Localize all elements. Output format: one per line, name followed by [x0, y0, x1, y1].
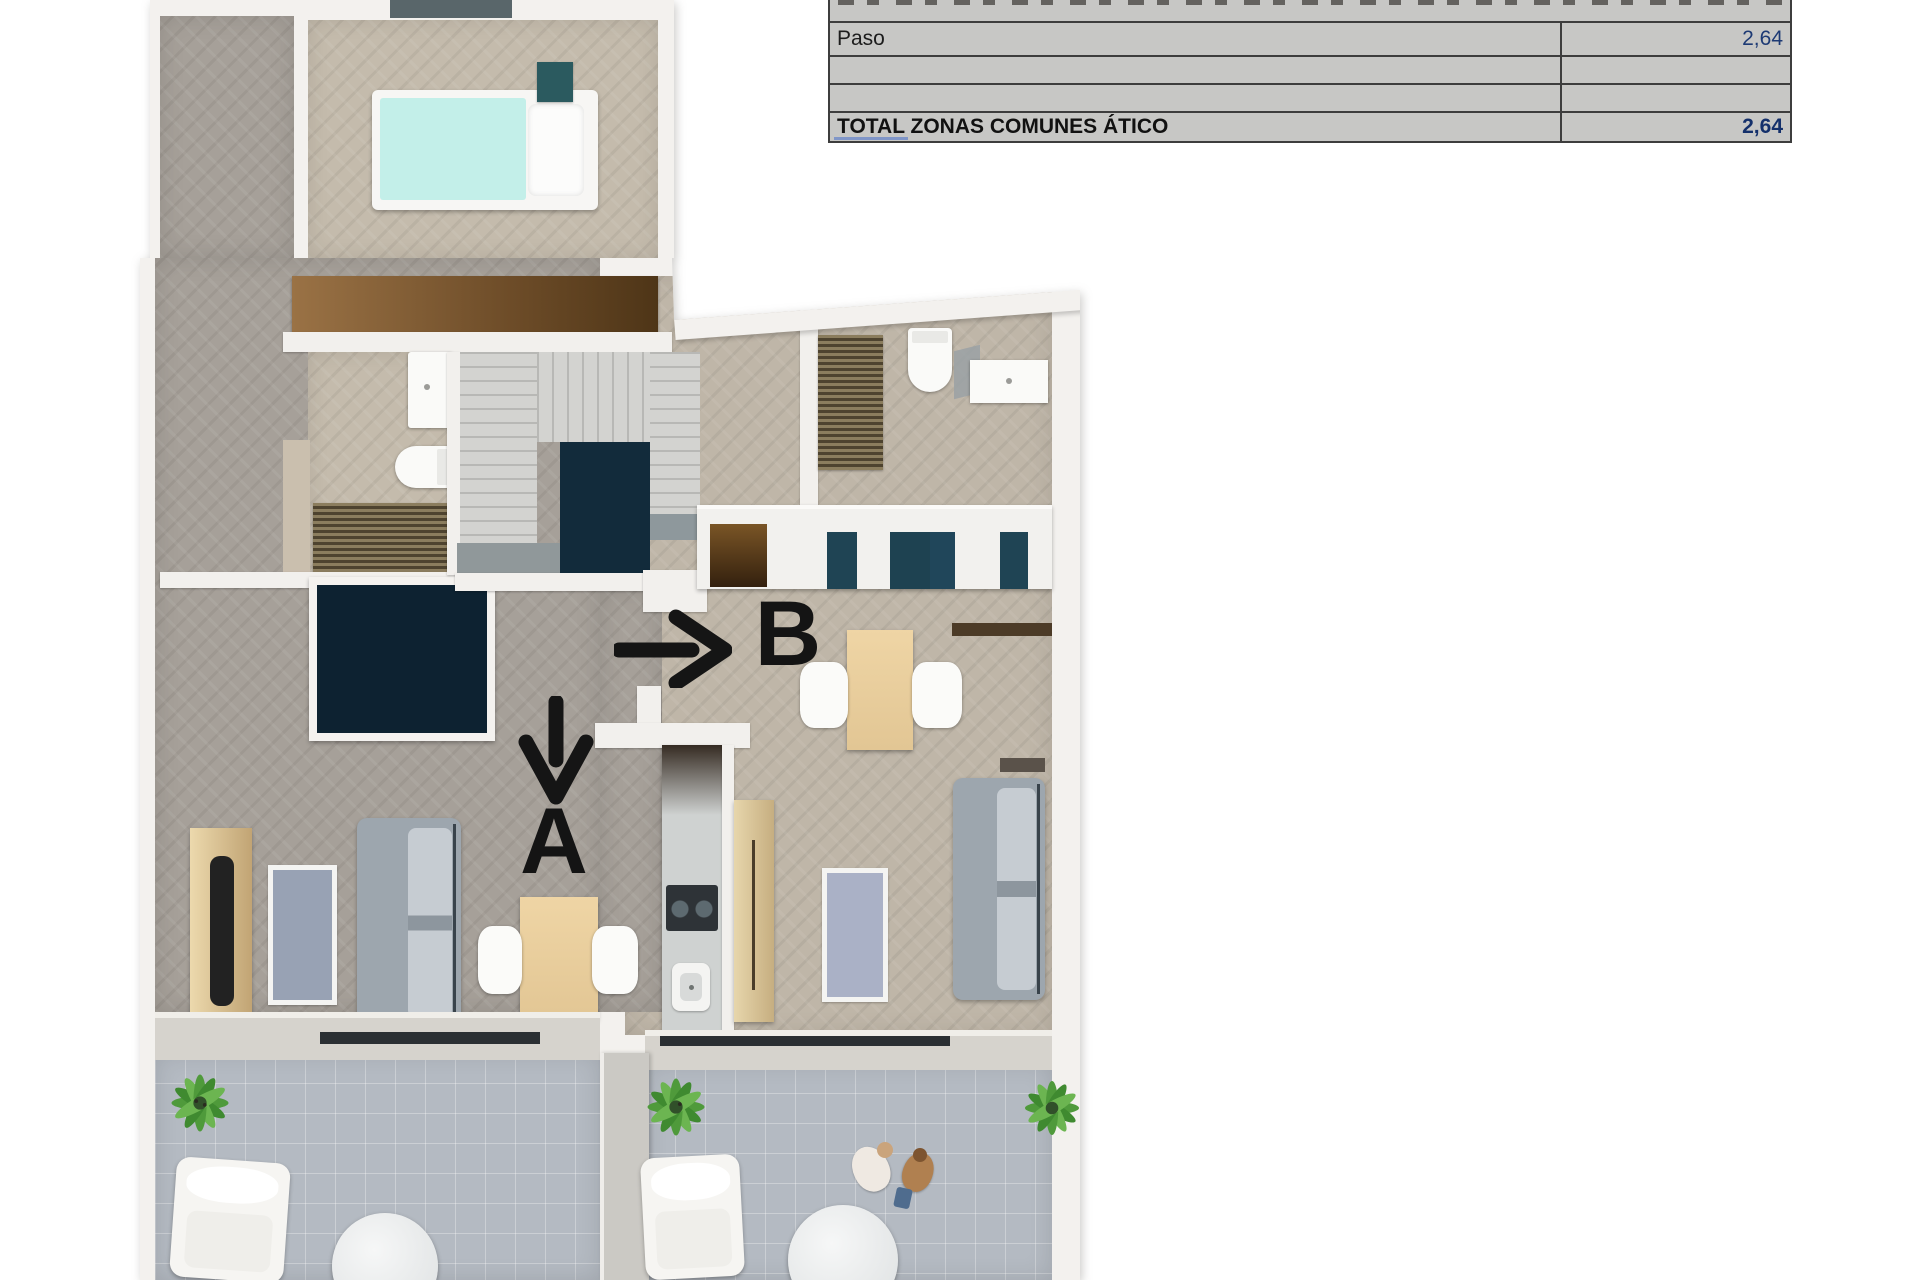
unit-b-label: B [740, 588, 836, 680]
stair-void-frame [309, 577, 495, 741]
page: Paso 2,64 TOTAL ZONAS COMUNES ÁTICO 2,64 [0, 0, 1920, 1280]
wardrobe [292, 276, 658, 332]
hood-shadow [662, 745, 722, 815]
chair [478, 926, 522, 994]
stair-void [317, 585, 487, 733]
summary-table: Paso 2,64 TOTAL ZONAS COMUNES ÁTICO 2,64 [828, 0, 1792, 143]
main-block [140, 258, 1080, 1280]
toilet-tank [912, 331, 948, 343]
cabinet-handle [752, 840, 755, 990]
wall [283, 440, 310, 577]
chair [592, 926, 638, 994]
stairs [537, 352, 650, 442]
corridor [160, 16, 294, 258]
wall [637, 686, 661, 728]
sliding-door [660, 1036, 950, 1046]
row-label: Paso [830, 23, 1562, 55]
wall-terrace-a [155, 1012, 600, 1060]
stair-landing [650, 514, 700, 540]
plant-icon [638, 1064, 714, 1150]
headboard-cushion [537, 62, 573, 102]
row-value: 2,64 [1562, 23, 1790, 55]
rug [268, 865, 337, 1005]
row-label [830, 57, 1562, 83]
total-value: 2,64 [1562, 113, 1790, 141]
row-label [830, 85, 1562, 111]
table-clipped-row [830, 0, 1790, 21]
person-head [913, 1148, 927, 1162]
bed-mattress [380, 98, 526, 200]
stair-void [560, 442, 650, 575]
bed-pillow [528, 104, 584, 196]
table-total-row: TOTAL ZONAS COMUNES ÁTICO 2,64 [830, 111, 1790, 141]
plant-icon [162, 1060, 238, 1146]
cabinet-door [827, 532, 857, 589]
kitchen-sink [672, 963, 710, 1011]
kitchen-counter [662, 745, 722, 1035]
row-value [1562, 85, 1790, 111]
table-row [830, 83, 1790, 111]
stairs [650, 352, 700, 514]
unit-a-label: A [508, 794, 600, 888]
sink [970, 360, 1048, 403]
sideboard [190, 828, 252, 1032]
kitchen-counter [697, 505, 1052, 589]
lounger [169, 1156, 291, 1280]
drain-icon [689, 985, 694, 990]
toilet [395, 446, 453, 488]
cooktop [666, 885, 718, 931]
wall [800, 300, 818, 514]
sofa [357, 818, 461, 1028]
dining-table-b [847, 630, 913, 750]
lounger [640, 1153, 745, 1280]
row-value [1562, 57, 1790, 83]
faucet-icon [1006, 378, 1012, 384]
arrow-right-icon [614, 608, 732, 688]
plant-icon [1016, 1066, 1088, 1150]
dining-table-a [520, 897, 598, 1020]
cabinet-door [930, 532, 955, 589]
stair-landing [457, 543, 560, 573]
wall [283, 332, 672, 352]
table-row [830, 55, 1790, 83]
chair [912, 662, 962, 728]
tall-cabinet [734, 800, 774, 1022]
tv [210, 856, 234, 1006]
person-head [877, 1142, 893, 1158]
bedroom-block [150, 0, 674, 258]
rug [822, 868, 888, 1002]
toilet [908, 328, 952, 392]
wall-shelf [952, 623, 1052, 636]
wall [447, 352, 460, 575]
cabinet-door [1000, 532, 1028, 589]
counter-opening [710, 524, 767, 587]
stairs-arrival [818, 335, 883, 470]
faucet-icon [424, 384, 430, 390]
wall [722, 745, 734, 1035]
window-strip [390, 0, 512, 18]
total-label: TOTAL ZONAS COMUNES ÁTICO [830, 113, 1562, 141]
stairs [460, 352, 537, 575]
table-row: Paso 2,64 [830, 21, 1790, 55]
radiator [1000, 758, 1045, 772]
sliding-door [320, 1032, 540, 1044]
sofa [953, 778, 1045, 1000]
